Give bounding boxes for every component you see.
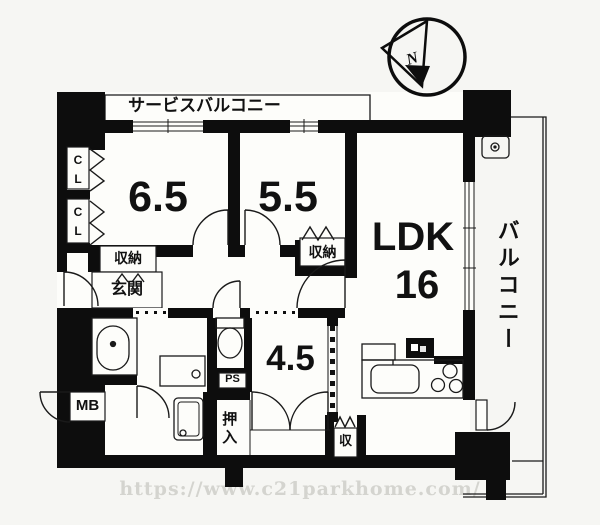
closet-cl1-label: C L bbox=[67, 151, 89, 188]
compass-icon: N bbox=[382, 19, 465, 95]
ldk-size-label: 16 bbox=[367, 264, 467, 307]
room-6-5-label: 6.5 bbox=[108, 174, 208, 220]
floorplan-page: https://www.c21parkhome.com/ bbox=[0, 0, 600, 525]
balcony-door-leaf bbox=[476, 400, 487, 430]
closet-cl2-label: C L bbox=[67, 203, 89, 240]
small-storage-label: 収 bbox=[334, 434, 357, 448]
pipe-space-label: PS bbox=[219, 374, 246, 386]
entrance-label: 玄関 bbox=[92, 281, 162, 298]
bedroom-storage-label: 収納 bbox=[300, 245, 345, 260]
toilet-door-gap bbox=[213, 308, 240, 318]
service-balcony-label: サービスバルコニー bbox=[122, 97, 287, 115]
room-5-5-label: 5.5 bbox=[238, 174, 338, 220]
door-balcony bbox=[487, 402, 515, 430]
hall-storage-label: 収納 bbox=[100, 251, 156, 266]
bathtub-drain bbox=[111, 342, 116, 347]
balcony-label: バルコニー bbox=[495, 196, 519, 376]
oshiire-label: 押入 bbox=[220, 402, 236, 456]
ldk-label: LDK bbox=[363, 216, 463, 259]
room-4-5-label: 4.5 bbox=[248, 340, 333, 378]
meter-box-label: MB bbox=[70, 398, 105, 414]
